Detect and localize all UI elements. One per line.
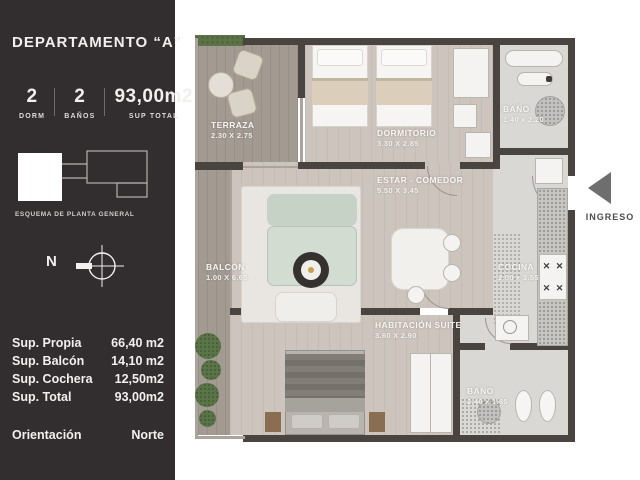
window-terraza-dorm bbox=[300, 98, 303, 162]
glass-balcon-living bbox=[230, 170, 232, 308]
area-row-cochera: Sup. Cochera 12,50m2 bbox=[12, 370, 164, 388]
stat-banos-label: BAÑOS bbox=[64, 113, 95, 120]
room-dims: 2.30 X 2.75 bbox=[211, 131, 254, 141]
room-name: DORMITORIO bbox=[377, 128, 436, 138]
stat-suptotal-value: 93,00m2 bbox=[114, 86, 193, 108]
suite-bed-blanket bbox=[285, 354, 365, 398]
bed-single bbox=[312, 45, 368, 127]
suite-pillow bbox=[291, 414, 323, 429]
faucet-icon bbox=[546, 76, 552, 82]
stat-suptotal-label: SUP TOTAL bbox=[114, 113, 193, 120]
suite-pillow bbox=[328, 414, 360, 429]
closet-box bbox=[453, 104, 477, 128]
sofa-back bbox=[267, 194, 357, 226]
floor-plan: ✕ ✕ ✕ ✕ TERRAZA 2.30 X 2.75 DORMITORIO 3… bbox=[195, 38, 575, 442]
stove-burner-icon: ✕ bbox=[556, 283, 564, 294]
armchair bbox=[275, 292, 337, 322]
label-dormitorio: DORMITORIO 3.30 X 2.85 bbox=[377, 128, 436, 150]
wall-terraza-dorm bbox=[298, 38, 305, 98]
orientation-row: Orientación Norte bbox=[12, 428, 164, 442]
plant bbox=[195, 333, 221, 359]
suite-bed-sheet bbox=[285, 398, 365, 412]
room-name: ESTAR - COMEDOR bbox=[377, 175, 463, 185]
wall-suite-top-stub bbox=[448, 308, 493, 315]
entrance-label: INGRESO bbox=[578, 212, 640, 222]
label-bano-bottom: BAÑO 2.40 x 1.85 bbox=[467, 386, 508, 408]
stat-dorm: 2 DORM bbox=[10, 86, 54, 120]
plant bbox=[199, 410, 216, 427]
label-estar-comedor: ESTAR - COMEDOR 5.50 X 3.45 bbox=[377, 175, 463, 197]
balcony-railing-bottom bbox=[195, 436, 245, 439]
wall-bath-top-bottom bbox=[493, 148, 568, 155]
north-compass-icon bbox=[60, 242, 150, 292]
floorplan-page: { "sidebar": { "title": "DEPARTAMENTO “A… bbox=[0, 0, 640, 480]
stove-burner-icon: ✕ bbox=[543, 261, 551, 272]
stove-burner-icon: ✕ bbox=[556, 261, 564, 272]
schematic-caption: ESQUEMA DE PLANTA GENERAL bbox=[15, 211, 135, 218]
area-row-balcon: Sup. Balcón 14,10 m2 bbox=[12, 352, 164, 370]
apartment-title: DEPARTAMENTO “A” bbox=[12, 34, 182, 51]
terrace-hedge bbox=[195, 35, 245, 46]
wall-dorm-bottom-stub bbox=[460, 162, 500, 169]
plant-location-schematic-icon bbox=[14, 146, 164, 208]
area-value: 12,50m2 bbox=[115, 370, 164, 388]
nightstand bbox=[369, 412, 385, 432]
room-name: TERRAZA bbox=[211, 120, 254, 130]
nightstand bbox=[265, 412, 281, 432]
area-table: Sup. Propia 66,40 m2 Sup. Balcón 14,10 m… bbox=[12, 334, 164, 406]
label-cocina: COCINA 2.00 x 3.55 bbox=[498, 262, 539, 284]
fridge bbox=[535, 158, 563, 184]
bed-blanket bbox=[376, 78, 432, 105]
stat-banos-value: 2 bbox=[64, 86, 95, 108]
area-label: Sup. Propia bbox=[12, 334, 81, 352]
glass-terraza-living bbox=[243, 166, 298, 168]
wall-hall-bath bbox=[493, 38, 500, 162]
room-dims: 2.40 x 1.85 bbox=[467, 397, 508, 407]
orientation-value: Norte bbox=[131, 428, 164, 442]
room-dims: 1.40 x 2.20 bbox=[503, 115, 544, 125]
room-dims: 3.60 X 2.90 bbox=[375, 331, 462, 341]
room-name: BALCÓN bbox=[206, 262, 245, 272]
area-label: Sup. Balcón bbox=[12, 352, 84, 370]
wall-dorm-bottom bbox=[298, 162, 425, 169]
summary-stats: 2 DORM 2 BAÑOS 93,00m2 SUP TOTAL bbox=[10, 86, 202, 120]
bed-pillow bbox=[317, 49, 363, 66]
wall-terraza-stub bbox=[195, 162, 243, 170]
info-sidebar: DEPARTAMENTO “A” 2 DORM 2 BAÑOS 93,00m2 … bbox=[0, 0, 175, 480]
wall-top bbox=[243, 38, 568, 45]
bed-pillow bbox=[381, 49, 427, 66]
stat-suptotal: 93,00m2 SUP TOTAL bbox=[105, 86, 202, 120]
stat-banos: 2 BAÑOS bbox=[55, 86, 104, 120]
suite-wardrobe bbox=[410, 353, 452, 433]
room-dims: 2.00 x 3.55 bbox=[498, 273, 539, 283]
room-dims: 3.30 X 2.85 bbox=[377, 139, 436, 149]
area-value: 14,10 m2 bbox=[111, 352, 164, 370]
room-name: BAÑO bbox=[467, 386, 494, 396]
area-label: Sup. Total bbox=[12, 388, 72, 406]
plant bbox=[195, 383, 219, 407]
area-value: 93,00m2 bbox=[115, 388, 164, 406]
wall-right-upper bbox=[568, 38, 575, 176]
stove-burner-icon: ✕ bbox=[543, 283, 551, 294]
dining-chair bbox=[407, 286, 425, 304]
area-label: Sup. Cochera bbox=[12, 370, 93, 388]
label-balcon: BALCÓN 1.00 X 6.65 bbox=[206, 262, 248, 284]
room-dims: 5.50 X 3.45 bbox=[377, 186, 463, 196]
room-dims: 1.00 X 6.65 bbox=[206, 273, 248, 283]
north-letter: N bbox=[46, 253, 57, 270]
stat-dorm-value: 2 bbox=[19, 86, 45, 108]
closet-box bbox=[465, 132, 491, 158]
label-terraza: TERRAZA 2.30 X 2.75 bbox=[211, 120, 254, 142]
area-row-propia: Sup. Propia 66,40 m2 bbox=[12, 334, 164, 352]
terrace-table bbox=[208, 72, 234, 98]
dining-chair bbox=[443, 234, 461, 252]
wall-right-lower bbox=[568, 210, 575, 442]
dining-table bbox=[391, 228, 449, 290]
area-row-total: Sup. Total 93,00m2 bbox=[12, 388, 164, 406]
coffee-table-decor bbox=[308, 267, 314, 273]
stove: ✕ ✕ ✕ ✕ bbox=[539, 254, 567, 300]
wall-bath2-top-left bbox=[453, 343, 485, 350]
room-name: HABITACIÓN SUITE bbox=[375, 320, 462, 330]
room-name: BAÑO bbox=[503, 104, 530, 114]
wardrobe-divider bbox=[430, 353, 431, 433]
label-habitacion-suite: HABITACIÓN SUITE 3.60 X 2.90 bbox=[375, 320, 462, 342]
orientation-label: Orientación bbox=[12, 428, 81, 442]
plant bbox=[201, 360, 221, 380]
area-value: 66,40 m2 bbox=[111, 334, 164, 352]
entrance-arrow-icon bbox=[588, 172, 611, 204]
bed-single bbox=[376, 45, 432, 127]
wall-closet-right bbox=[453, 350, 460, 435]
laundry-sink-basin bbox=[503, 320, 517, 334]
bathtub bbox=[505, 50, 563, 67]
dining-chair bbox=[443, 264, 461, 282]
balcony-railing bbox=[195, 38, 198, 439]
bed-blanket bbox=[312, 78, 368, 105]
closet-box bbox=[453, 48, 489, 98]
label-bano-top: BAÑO 1.40 x 2.20 bbox=[503, 104, 544, 126]
room-name: COCINA bbox=[498, 262, 534, 272]
stat-dorm-label: DORM bbox=[19, 113, 45, 120]
wall-bottom bbox=[243, 435, 568, 442]
